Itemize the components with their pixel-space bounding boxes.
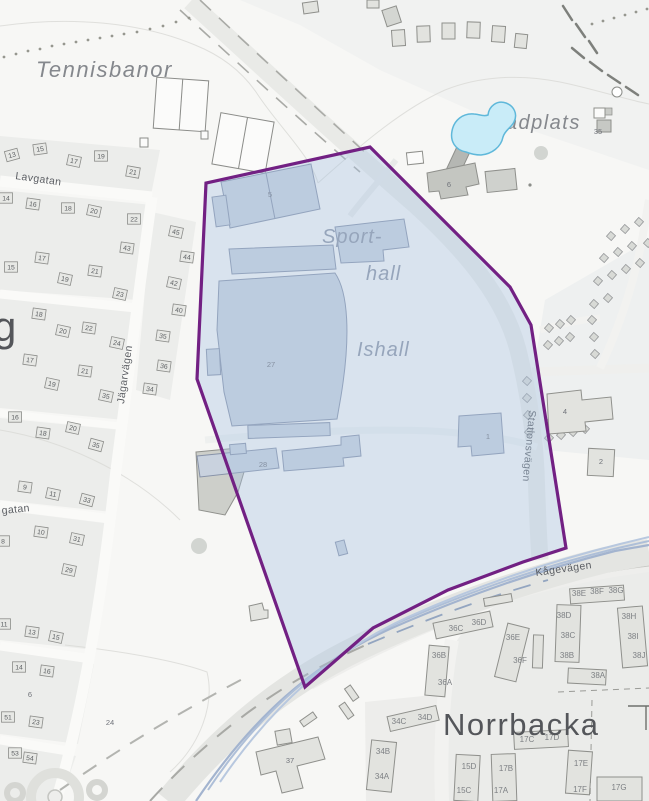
house-number: 18 — [64, 205, 72, 212]
house-number: 43 — [123, 245, 132, 253]
house-number: 17 — [26, 357, 35, 365]
map-number: 4 — [563, 407, 567, 416]
house: 18 — [36, 427, 50, 439]
house: 16 — [26, 198, 40, 210]
house: 9 — [18, 481, 32, 493]
unit-label: 34A — [375, 772, 390, 781]
house: 44 — [180, 251, 194, 263]
unit-label: 38C — [561, 631, 576, 640]
house-number: 18 — [35, 311, 44, 319]
house: 45 — [169, 226, 184, 239]
unit-label: 36C — [449, 624, 464, 633]
house: 10 — [34, 526, 48, 538]
unit-label: 36D — [472, 618, 487, 627]
house-number: 14 — [2, 195, 10, 202]
house: 15 — [33, 143, 47, 155]
house: 20 — [66, 422, 81, 435]
house-number: 16 — [11, 414, 19, 421]
house: 21 — [126, 166, 141, 178]
unit-label: 17A — [494, 786, 509, 795]
scanned-plan-map: 1315171921141618202243171521192345444240… — [0, 0, 649, 801]
house: 23 — [113, 288, 128, 301]
house: 17 — [23, 354, 37, 366]
house: 21 — [78, 365, 92, 377]
unit-label: 38H — [622, 612, 637, 621]
house-number: 35 — [159, 333, 168, 341]
house: 14 — [13, 662, 26, 672]
house: 18 — [32, 308, 46, 320]
house-number: 17 — [38, 255, 47, 263]
unit-label: 17B — [499, 764, 513, 773]
house: 18 — [62, 203, 75, 213]
house-number: 18 — [39, 430, 48, 438]
unit-label: 34C — [392, 717, 407, 726]
house-number: 22 — [85, 325, 94, 333]
house: 11 — [46, 488, 61, 501]
house-number: 8 — [1, 538, 5, 545]
label-norrbacka: Norrbacka — [443, 707, 600, 742]
unit-label: 17G — [611, 783, 626, 792]
house: 15 — [5, 262, 18, 272]
map-number: 24 — [106, 718, 114, 727]
map-number: 6 — [28, 690, 32, 699]
house: 42 — [167, 277, 182, 290]
house: 8 — [0, 536, 10, 546]
map-number: 2 — [599, 457, 603, 466]
house-number: 22 — [130, 216, 138, 223]
label-tennisbanor: Tennisbanor — [36, 57, 173, 82]
house: 20 — [87, 205, 102, 218]
house: 17 — [67, 155, 82, 168]
unit-label: 38B — [560, 651, 574, 660]
unit-label: 38I — [627, 632, 638, 641]
house: 13 — [25, 626, 39, 638]
unit-label: 38E — [572, 589, 586, 598]
house-number: 44 — [183, 254, 192, 262]
house: 54 — [23, 752, 37, 764]
house-number: 10 — [37, 529, 46, 537]
house-number: 23 — [32, 719, 41, 727]
map-number: 6 — [447, 180, 451, 189]
unit-label: 36A — [438, 678, 453, 687]
unit-label: 17E — [574, 759, 588, 768]
house: 43 — [120, 242, 134, 254]
unit-label: 36F — [513, 656, 527, 665]
map-number: 37 — [286, 756, 294, 765]
house: 14 — [0, 193, 13, 203]
house: 19 — [58, 273, 73, 286]
house: 29 — [62, 564, 77, 577]
house: 53 — [9, 748, 22, 758]
unit-label: 38F — [590, 587, 604, 596]
house: 22 — [82, 322, 96, 334]
house-number: 13 — [28, 629, 37, 637]
house-number: 16 — [29, 201, 38, 209]
unit-label: 38D — [557, 611, 572, 620]
house: 16 — [40, 665, 54, 677]
house: 21 — [88, 265, 102, 277]
unit-label: 15D — [462, 762, 477, 771]
house: 40 — [172, 304, 186, 316]
house-number: 15 — [7, 264, 15, 271]
house: 36 — [157, 360, 171, 372]
house-number: 16 — [43, 668, 52, 676]
unit-label: 38G — [608, 586, 623, 595]
map-number: 35 — [594, 127, 602, 136]
house-number: 34 — [146, 386, 155, 394]
unit-label: 17F — [573, 785, 587, 794]
small-circle-mark — [612, 87, 622, 97]
house: 19 — [45, 378, 60, 391]
house-number: 15 — [36, 146, 45, 154]
house-number: 54 — [26, 755, 35, 763]
house: 31 — [70, 533, 85, 546]
house: 23 — [29, 716, 43, 728]
unit-label: 38A — [591, 671, 606, 680]
label-district-partial: g — [0, 303, 18, 350]
unit-label: 36E — [506, 633, 520, 642]
house-number: 11 — [0, 621, 7, 628]
house-number: 21 — [91, 268, 100, 276]
unit-label: 15C — [457, 786, 472, 795]
unit-label: 34B — [376, 747, 390, 756]
house-number: 51 — [4, 714, 12, 721]
house-number: 21 — [129, 169, 138, 177]
house: 22 — [128, 214, 141, 224]
house: 15 — [49, 631, 64, 644]
unit-label: 38J — [633, 651, 646, 660]
house: 17 — [35, 252, 49, 264]
house-number: 21 — [81, 368, 90, 376]
unit-label: 36B — [432, 651, 446, 660]
house: 35 — [99, 390, 114, 403]
unit-label: 34D — [418, 713, 433, 722]
house-number: 40 — [175, 307, 184, 315]
house: 35 — [156, 330, 170, 342]
house: 51 — [2, 712, 15, 722]
house: 34 — [143, 383, 157, 395]
house-number: 19 — [97, 153, 105, 160]
house-number: 14 — [15, 664, 23, 671]
house: 11 — [0, 619, 11, 629]
house: 16 — [9, 412, 22, 422]
house-number: 53 — [11, 750, 19, 757]
map-svg: 1315171921141618202243171521192345444240… — [0, 0, 649, 801]
house: 19 — [95, 151, 108, 161]
house: 20 — [56, 325, 71, 338]
house-number: 36 — [160, 363, 169, 371]
